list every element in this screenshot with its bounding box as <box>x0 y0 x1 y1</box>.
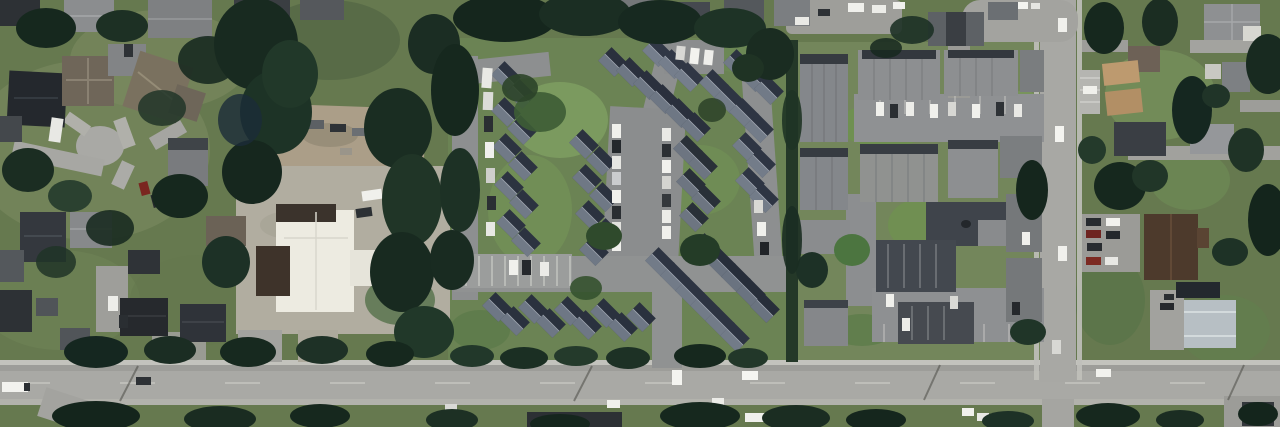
tan-apartment-roof <box>1105 88 1143 116</box>
tree <box>728 348 768 368</box>
house-roof <box>0 290 32 332</box>
car <box>485 142 494 158</box>
tree <box>680 234 720 266</box>
tree <box>1132 160 1168 192</box>
tree <box>366 341 414 367</box>
tree <box>570 276 602 300</box>
tree <box>138 90 186 126</box>
tree <box>1238 402 1278 426</box>
car <box>930 104 938 118</box>
road-shoulder <box>0 399 1280 405</box>
car <box>1106 218 1120 226</box>
car <box>1106 231 1120 239</box>
car <box>902 318 910 331</box>
tree <box>890 16 934 44</box>
car <box>962 408 974 416</box>
car <box>1018 2 1028 9</box>
car <box>1086 230 1101 238</box>
driveway <box>1240 100 1280 112</box>
tree <box>262 40 318 108</box>
bright-tree <box>834 234 870 266</box>
tree <box>202 236 250 288</box>
car <box>612 156 621 169</box>
car <box>612 124 621 138</box>
tree <box>220 337 276 367</box>
tree <box>16 8 76 48</box>
hedge-line <box>786 40 798 362</box>
car <box>886 294 894 307</box>
dark-roof <box>1176 282 1220 298</box>
tree <box>2 148 54 192</box>
car <box>818 9 830 16</box>
stored-vehicle <box>330 124 346 132</box>
trailer <box>848 3 864 12</box>
shed-roof <box>1205 64 1221 79</box>
house-roof <box>0 116 22 142</box>
tree <box>430 230 474 290</box>
tree <box>296 336 348 364</box>
building-roof <box>800 54 848 64</box>
car <box>672 370 682 385</box>
car <box>906 102 914 116</box>
aerial-photo-svg <box>0 0 1280 427</box>
car <box>486 222 495 236</box>
car <box>1086 218 1101 226</box>
car <box>662 144 671 157</box>
tree <box>36 246 76 278</box>
tree <box>1202 84 1230 108</box>
sidewalk <box>1077 0 1082 380</box>
tree <box>1010 319 1046 345</box>
apartment-roof <box>1114 122 1166 156</box>
car <box>1014 104 1022 117</box>
tree <box>290 404 350 427</box>
tan-apartment-roof <box>1102 60 1140 86</box>
car <box>876 102 884 116</box>
building-roof <box>800 148 848 157</box>
stored-vehicle <box>352 128 366 136</box>
car <box>509 260 518 275</box>
car <box>1087 243 1102 251</box>
rv <box>481 68 492 89</box>
house-roof <box>988 2 1018 20</box>
tree <box>370 232 434 312</box>
tree <box>152 174 208 218</box>
tree <box>364 88 432 168</box>
tree <box>606 347 650 369</box>
car <box>662 194 671 207</box>
car <box>487 196 496 210</box>
car <box>757 222 766 236</box>
car <box>662 226 671 239</box>
car <box>612 206 621 219</box>
car <box>136 377 151 385</box>
carport-roof <box>800 148 848 210</box>
tree <box>1172 76 1212 144</box>
car <box>948 102 956 116</box>
car <box>124 44 133 57</box>
tree <box>500 347 548 369</box>
tree <box>144 336 196 364</box>
car <box>754 200 763 213</box>
tree <box>218 94 262 146</box>
tree <box>222 140 282 204</box>
tree <box>1142 0 1178 46</box>
tree <box>64 336 128 368</box>
tree <box>440 148 480 232</box>
car <box>612 172 621 185</box>
building-roof <box>978 220 1010 246</box>
car <box>1164 294 1174 300</box>
car <box>742 371 758 380</box>
church-annex <box>256 246 290 296</box>
car <box>1096 369 1111 377</box>
tree <box>554 346 598 366</box>
house-roof <box>0 250 24 282</box>
car <box>1083 86 1097 94</box>
car <box>540 262 549 276</box>
car <box>703 50 714 66</box>
house-roof <box>180 304 226 342</box>
car <box>1105 257 1118 265</box>
building-roof <box>804 300 848 308</box>
tree <box>178 36 238 84</box>
tree <box>782 206 802 274</box>
car <box>108 296 118 311</box>
tree <box>1228 128 1264 172</box>
building-roof <box>961 220 971 228</box>
building-roof <box>946 12 966 46</box>
car <box>662 176 671 189</box>
house-roof <box>1222 62 1250 92</box>
shed-roof <box>36 298 58 316</box>
tree <box>698 98 726 122</box>
tree <box>732 54 764 82</box>
tree <box>870 38 902 58</box>
silver-metal-roof <box>1184 300 1236 348</box>
car <box>1031 3 1040 9</box>
car <box>522 260 531 275</box>
car <box>486 168 495 183</box>
tree <box>382 154 442 246</box>
building-roof <box>1197 228 1209 248</box>
tree <box>450 345 494 367</box>
tree <box>96 10 148 42</box>
car <box>760 242 769 255</box>
car <box>996 102 1004 116</box>
church-dark-wing <box>276 204 336 222</box>
garage-roof <box>128 250 160 274</box>
road <box>1042 399 1074 427</box>
tree <box>86 210 134 246</box>
car <box>893 2 905 9</box>
car <box>612 140 621 153</box>
rv <box>483 92 494 110</box>
tree <box>1084 2 1124 54</box>
car <box>689 48 700 65</box>
tree <box>782 90 802 150</box>
car <box>1160 303 1174 310</box>
tree <box>1078 136 1106 164</box>
car <box>484 116 493 132</box>
carport-roof <box>1020 50 1044 92</box>
tree <box>586 222 622 250</box>
tree <box>1212 238 1248 266</box>
trailer <box>872 5 886 13</box>
car <box>662 160 671 173</box>
building-roof <box>948 140 998 149</box>
car <box>1052 340 1061 354</box>
tree <box>1016 160 1048 220</box>
screenshot-root <box>0 0 1280 427</box>
rv <box>745 413 765 422</box>
car <box>1022 232 1030 245</box>
car <box>119 315 128 328</box>
building-roof <box>860 144 938 154</box>
car <box>950 296 958 309</box>
building-roof <box>948 50 1014 58</box>
tree <box>674 344 726 368</box>
car <box>607 400 620 408</box>
trailer <box>795 17 809 25</box>
tree <box>618 0 702 44</box>
car <box>662 210 671 223</box>
apartments-parking <box>854 94 1044 142</box>
car <box>1012 302 1020 315</box>
tree <box>796 252 828 288</box>
car <box>612 190 621 203</box>
carport-roof <box>1006 258 1042 322</box>
tree <box>502 74 538 102</box>
car <box>662 128 671 141</box>
car <box>24 383 30 391</box>
house-roof <box>300 0 344 20</box>
car <box>1055 126 1064 142</box>
car <box>890 104 898 118</box>
car <box>972 104 980 118</box>
car <box>1058 18 1067 32</box>
car <box>675 46 685 61</box>
car <box>1058 246 1067 261</box>
tree <box>431 44 479 136</box>
car <box>1086 257 1101 265</box>
tree <box>48 180 92 212</box>
building-roof <box>168 138 208 150</box>
car <box>340 148 352 155</box>
